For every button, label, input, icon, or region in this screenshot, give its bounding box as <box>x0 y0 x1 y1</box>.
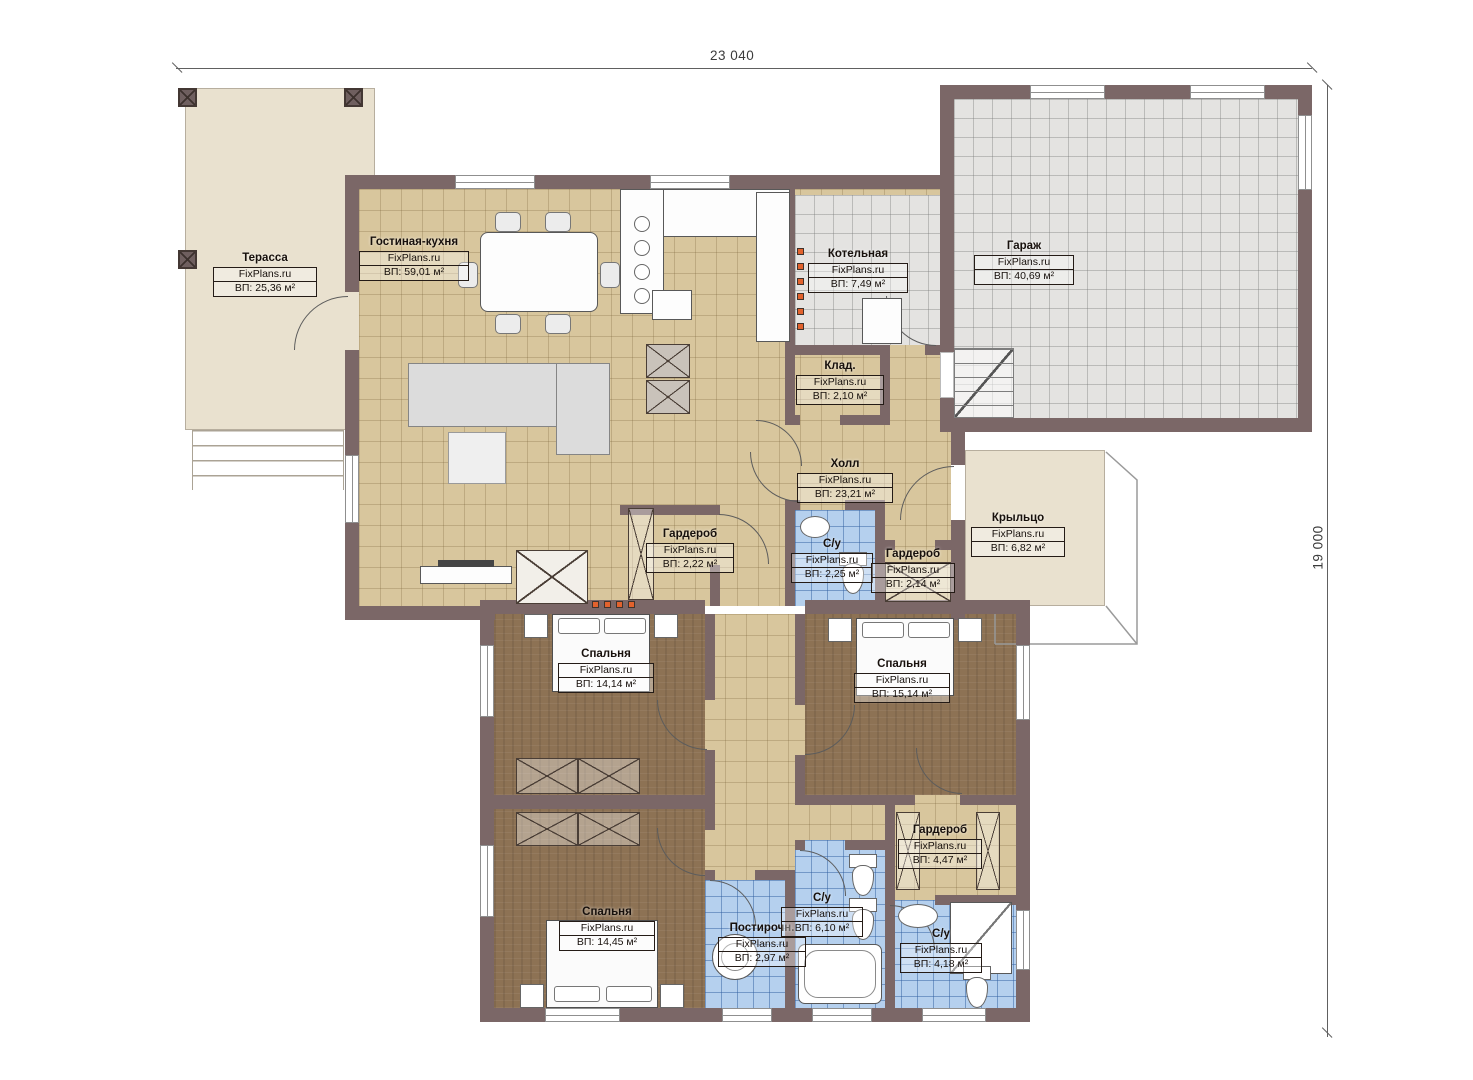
heating-element <box>797 248 804 255</box>
room-label-boiler: Котельная FixPlans.ru ВП: 7,49 м² <box>808 248 908 293</box>
sofa <box>556 363 610 455</box>
pillow <box>862 622 904 638</box>
room-label-wardrobe-hall-left: Гардероб FixPlans.ru ВП: 2,22 м² <box>646 528 734 573</box>
room-info-box: FixPlans.ru ВП: 2,25 м² <box>791 553 873 583</box>
brand-watermark: FixPlans.ru <box>797 376 883 391</box>
room-area: ВП: 14,14 м² <box>559 678 653 692</box>
bathtub <box>798 944 882 1004</box>
brand-watermark: FixPlans.ru <box>792 554 872 569</box>
cooktop-burner <box>634 240 650 256</box>
wall <box>345 606 495 620</box>
stairs <box>954 348 1014 418</box>
wall <box>960 795 1016 805</box>
window <box>1190 85 1265 99</box>
room-info-box: FixPlans.ru ВП: 2,10 м² <box>796 375 884 405</box>
dining-chair <box>495 212 521 232</box>
room-info-box: FixPlans.ru ВП: 2,14 м² <box>871 563 955 593</box>
window <box>345 455 359 523</box>
window <box>1016 910 1030 970</box>
brand-watermark: FixPlans.ru <box>899 840 981 855</box>
kitchen-island <box>646 344 690 378</box>
room-name: Гостиная-кухня <box>359 236 469 250</box>
closet <box>578 758 640 794</box>
window <box>1030 85 1105 99</box>
nightstand <box>654 614 678 638</box>
room-name: Терасса <box>213 252 317 266</box>
floor-led <box>592 601 599 608</box>
window <box>480 845 494 917</box>
room-area: ВП: 59,01 м² <box>360 266 468 280</box>
door-opening <box>940 352 954 398</box>
nightstand <box>958 618 982 642</box>
room-info-box: FixPlans.ru ВП: 4,18 м² <box>900 943 982 973</box>
room-label-storage: Клад. FixPlans.ru ВП: 2,10 м² <box>796 360 884 405</box>
brand-watermark: FixPlans.ru <box>855 674 949 689</box>
dimension-height-label: 19 000 <box>1311 525 1326 569</box>
terrace-steps <box>192 430 344 490</box>
nightstand <box>524 614 548 638</box>
closet <box>578 812 640 846</box>
closet <box>516 758 578 794</box>
wall <box>705 870 715 880</box>
room-area: ВП: 25,36 м² <box>214 282 316 296</box>
pillow <box>558 618 600 634</box>
room-info-box: FixPlans.ru ВП: 25,36 м² <box>213 267 317 297</box>
room-area: ВП: 23,21 м² <box>798 488 892 502</box>
floor-led <box>616 601 623 608</box>
brand-watermark: FixPlans.ru <box>809 264 907 279</box>
dining-chair <box>545 314 571 334</box>
room-area: ВП: 15,14 м² <box>855 688 949 702</box>
room-label-wardrobe-master: Гардероб FixPlans.ru ВП: 4,47 м² <box>898 824 982 869</box>
wall <box>885 895 895 905</box>
pillow <box>606 986 652 1002</box>
room-name: Клад. <box>796 360 884 374</box>
room-info-box: FixPlans.ru ВП: 2,22 м² <box>646 543 734 573</box>
wall <box>805 600 1016 614</box>
room-area: ВП: 14,45 м² <box>560 936 654 950</box>
room-info-box: FixPlans.ru ВП: 14,45 м² <box>559 921 655 951</box>
brand-watermark: FixPlans.ru <box>360 252 468 267</box>
fireplace <box>516 550 588 604</box>
room-info-box: FixPlans.ru ВП: 7,49 м² <box>808 263 908 293</box>
tv <box>438 560 494 567</box>
room-area: ВП: 40,69 м² <box>975 270 1073 284</box>
room-name: Крыльцо <box>971 512 1065 526</box>
wall <box>840 415 890 425</box>
window <box>480 645 494 717</box>
room-info-box: FixPlans.ru ВП: 23,21 м² <box>797 473 893 503</box>
room-area: ВП: 2,22 м² <box>647 558 733 572</box>
wall <box>795 345 885 355</box>
kitchen-island <box>646 380 690 414</box>
brand-watermark: FixPlans.ru <box>901 944 981 959</box>
room-info-box: FixPlans.ru ВП: 6,82 м² <box>971 527 1065 557</box>
brand-watermark: FixPlans.ru <box>719 938 805 953</box>
nightstand <box>660 984 684 1008</box>
room-name: Гардероб <box>871 548 955 562</box>
window <box>545 1008 620 1022</box>
room-area: ВП: 2,10 м² <box>797 390 883 404</box>
wall <box>785 415 800 425</box>
washbasin <box>898 904 938 928</box>
pillow <box>908 622 950 638</box>
heating-element <box>797 308 804 315</box>
cooktop-burner <box>634 264 650 280</box>
heating-element <box>797 263 804 270</box>
room-label-garage: Гараж FixPlans.ru ВП: 40,69 м² <box>974 240 1074 285</box>
heating-element <box>797 293 804 300</box>
room-area: ВП: 7,49 м² <box>809 278 907 292</box>
heating-element <box>797 278 804 285</box>
dining-chair <box>600 262 620 288</box>
dimension-height-line <box>1327 85 1328 1037</box>
pillow <box>554 986 600 1002</box>
boiler-unit <box>862 298 902 344</box>
brand-watermark: FixPlans.ru <box>872 564 954 579</box>
brand-watermark: FixPlans.ru <box>975 256 1073 271</box>
wall <box>940 189 954 352</box>
kitchen-sink <box>652 290 692 320</box>
window <box>650 175 730 189</box>
room-name: Спальня <box>559 906 655 920</box>
wall <box>345 175 359 292</box>
room-name: Гардероб <box>646 528 734 542</box>
window <box>922 1008 986 1022</box>
dining-chair <box>545 212 571 232</box>
nightstand <box>520 984 544 1008</box>
floor-plan: 23 040 19 000 <box>0 0 1473 1080</box>
cooktop-burner <box>634 288 650 304</box>
wall <box>705 750 715 830</box>
room-label-porch: Крыльцо FixPlans.ru ВП: 6,82 м² <box>971 512 1065 557</box>
room-label-living-kitchen: Гостиная-кухня FixPlans.ru ВП: 59,01 м² <box>359 236 469 281</box>
room-label-terrace: Терасса FixPlans.ru ВП: 25,36 м² <box>213 252 317 297</box>
room-area: ВП: 6,82 м² <box>972 542 1064 556</box>
room-area: ВП: 2,25 м² <box>792 568 872 582</box>
wall <box>925 345 940 355</box>
window <box>812 1008 872 1022</box>
wall <box>345 350 359 455</box>
wall <box>755 870 795 880</box>
dimension-width-label: 23 040 <box>710 48 754 63</box>
brand-watermark: FixPlans.ru <box>972 528 1064 543</box>
wall <box>940 85 954 189</box>
window <box>1016 645 1030 720</box>
room-name: Котельная <box>808 248 908 262</box>
brand-watermark: FixPlans.ru <box>798 474 892 489</box>
washbasin <box>800 516 830 538</box>
brand-watermark: FixPlans.ru <box>782 908 862 923</box>
room-label-bathroom-main: С/у FixPlans.ru ВП: 6,10 м² <box>781 892 863 937</box>
room-info-box: FixPlans.ru ВП: 40,69 м² <box>974 255 1074 285</box>
nightstand <box>828 618 852 642</box>
room-label-bedroom-right: Спальня FixPlans.ru ВП: 15,14 м² <box>854 658 950 703</box>
terrace-post <box>178 250 197 269</box>
dimension-width-line <box>176 68 1312 69</box>
pillow <box>604 618 646 634</box>
window <box>455 175 535 189</box>
floor-led <box>604 601 611 608</box>
room-label-bedroom-bottom: Спальня FixPlans.ru ВП: 14,45 м² <box>559 906 655 951</box>
room-name: Спальня <box>854 658 950 672</box>
room-name: С/у <box>791 538 873 552</box>
room-info-box: FixPlans.ru ВП: 15,14 м² <box>854 673 950 703</box>
room-area: ВП: 4,18 м² <box>901 958 981 972</box>
coffee-table <box>448 432 506 484</box>
room-area: ВП: 6,10 м² <box>782 922 862 936</box>
heating-element <box>797 323 804 330</box>
room-name: Холл <box>797 458 893 472</box>
room-label-wardrobe-hall-right: Гардероб FixPlans.ru ВП: 2,14 м² <box>871 548 955 593</box>
wall <box>805 795 915 805</box>
floor-led <box>628 601 635 608</box>
room-name: Гардероб <box>898 824 982 838</box>
room-info-box: FixPlans.ru ВП: 6,10 м² <box>781 907 863 937</box>
terrace-post <box>178 88 197 107</box>
room-info-box: FixPlans.ru ВП: 2,97 м² <box>718 937 806 967</box>
toilet <box>848 854 878 896</box>
wall <box>940 418 1312 432</box>
brand-watermark: FixPlans.ru <box>559 664 653 679</box>
brand-watermark: FixPlans.ru <box>647 544 733 559</box>
closet <box>516 812 578 846</box>
room-name: Гараж <box>974 240 1074 254</box>
brand-watermark: FixPlans.ru <box>560 922 654 937</box>
window <box>1298 115 1312 190</box>
dining-chair <box>495 314 521 334</box>
room-info-box: FixPlans.ru ВП: 14,14 м² <box>558 663 654 693</box>
room-area: ВП: 2,14 м² <box>872 578 954 592</box>
wall <box>795 840 805 850</box>
wall <box>795 755 805 805</box>
cooktop-burner <box>634 216 650 232</box>
room-area: ВП: 4,47 м² <box>899 854 981 868</box>
wall <box>705 614 715 700</box>
room-label-wc-hall: С/у FixPlans.ru ВП: 2,25 м² <box>791 538 873 583</box>
tv-console <box>420 566 512 584</box>
room-name: Спальня <box>558 648 654 662</box>
dining-table <box>480 232 598 312</box>
terrace-post <box>344 88 363 107</box>
wall <box>494 795 705 809</box>
room-label-bathroom-master: С/у FixPlans.ru ВП: 4,18 м² <box>900 928 982 973</box>
wall <box>795 614 805 705</box>
room-info-box: FixPlans.ru ВП: 59,01 м² <box>359 251 469 281</box>
fridge <box>756 192 790 342</box>
window <box>722 1008 772 1022</box>
room-label-hall: Холл FixPlans.ru ВП: 23,21 м² <box>797 458 893 503</box>
room-name: С/у <box>900 928 982 942</box>
room-label-bedroom-left: Спальня FixPlans.ru ВП: 14,14 м² <box>558 648 654 693</box>
brand-watermark: FixPlans.ru <box>214 268 316 283</box>
room-info-box: FixPlans.ru ВП: 4,47 м² <box>898 839 982 869</box>
room-name: С/у <box>781 892 863 906</box>
room-area: ВП: 2,97 м² <box>719 952 805 966</box>
wall <box>845 840 885 850</box>
